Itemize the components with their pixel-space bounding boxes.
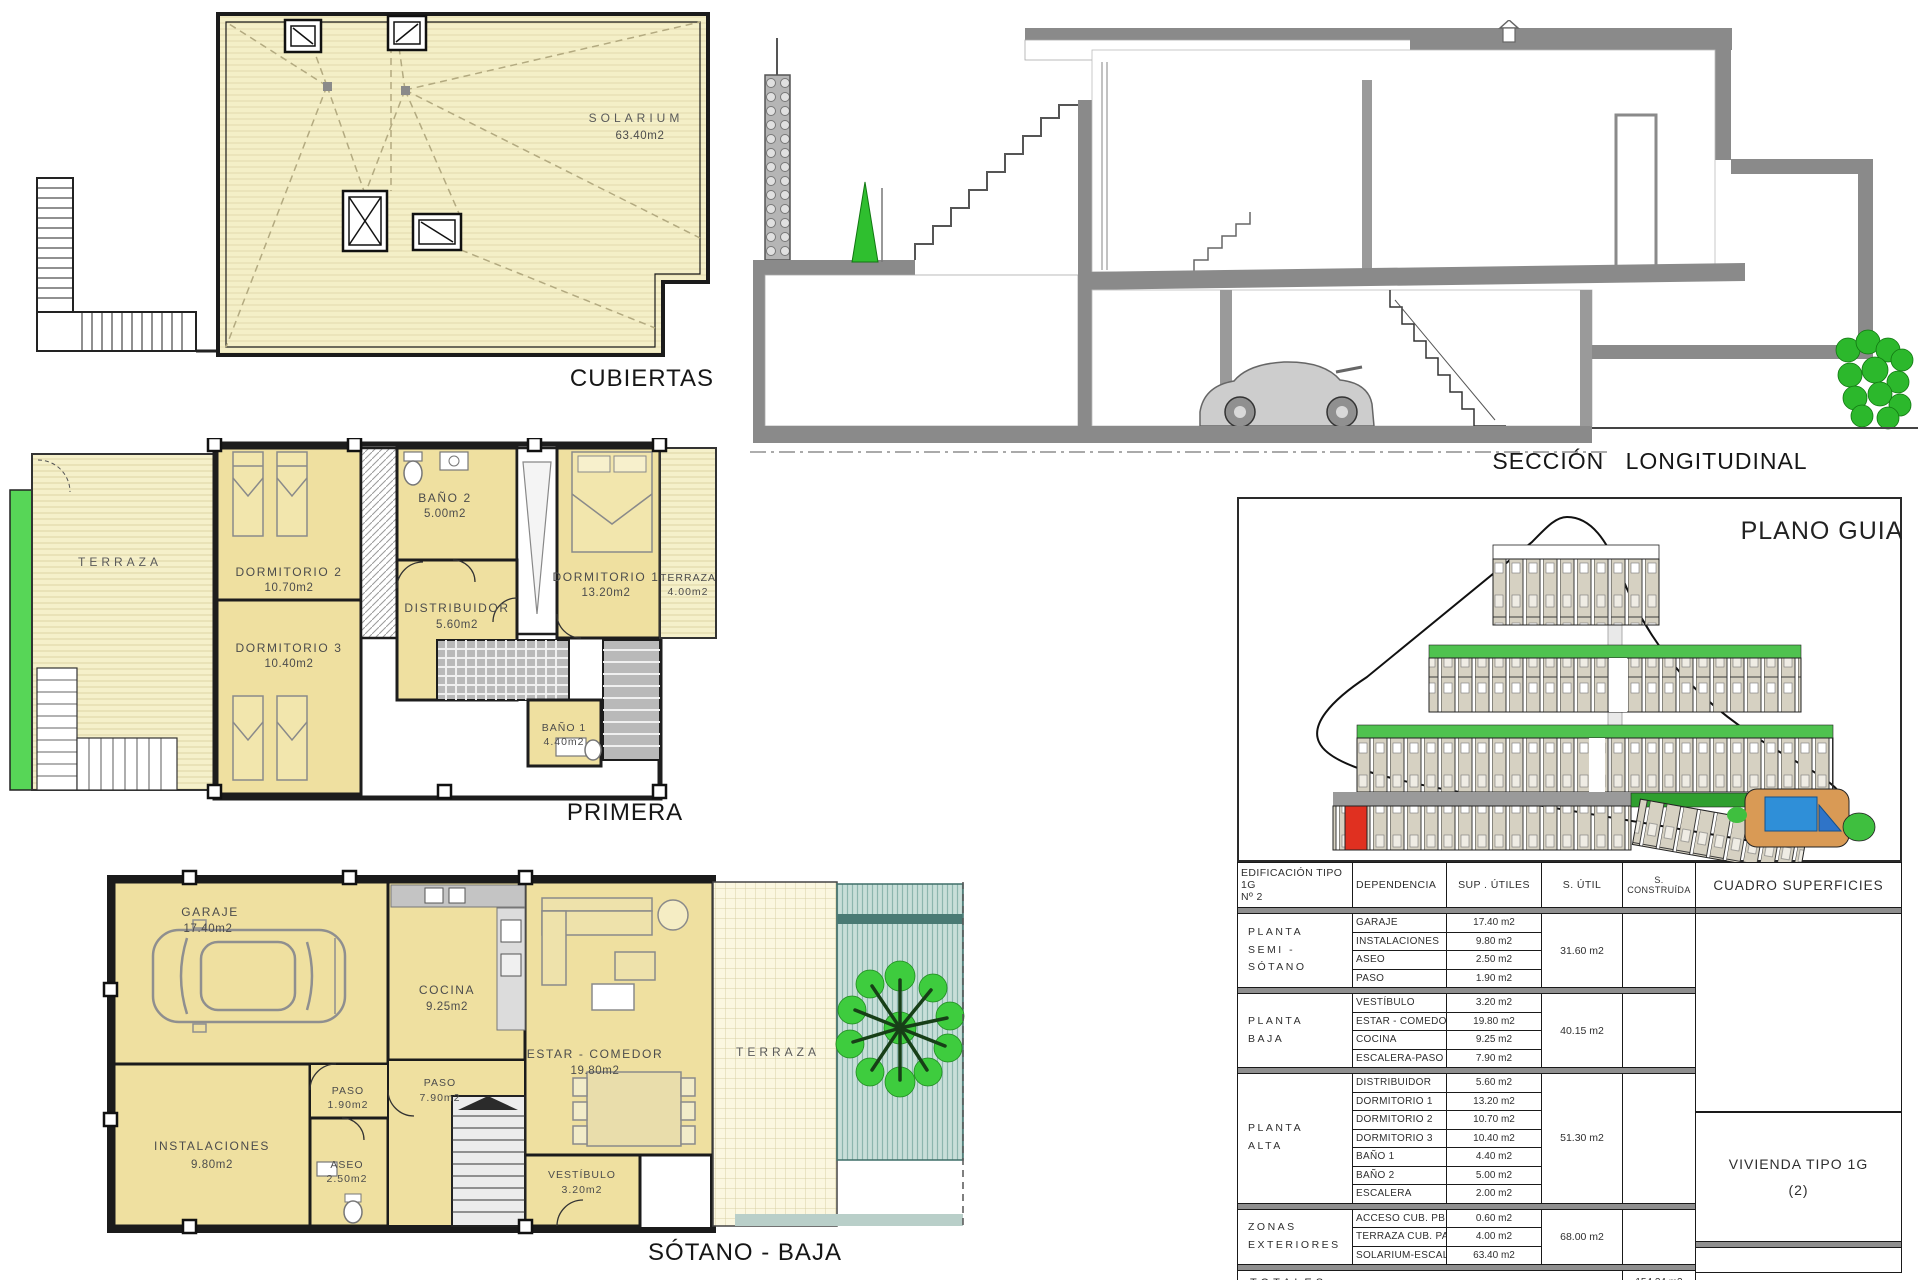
sup-cell: 2.00 m2 bbox=[1447, 1185, 1542, 1204]
basement-wall bbox=[1580, 290, 1592, 426]
subtotal-alta: 51.30 m2 bbox=[1542, 1074, 1623, 1204]
sup-cell: 1.90 m2 bbox=[1447, 969, 1542, 988]
room-label-bano1: BAÑO 1 bbox=[542, 721, 587, 734]
dep-cell: ESCALERA-PASO bbox=[1353, 1049, 1447, 1068]
green-area bbox=[1843, 813, 1875, 841]
room-label-terraza-left: TERRAZA bbox=[78, 555, 162, 569]
dep-cell: DORMITORIO 2 bbox=[1353, 1111, 1447, 1130]
room-label-distribuidor: DISTRIBUIDOR bbox=[404, 601, 509, 615]
garden-lower-strip bbox=[735, 1214, 963, 1226]
housing-row-bottom bbox=[1333, 806, 1631, 850]
table-row: PLANTA SEMI - SÓTANO GARAJE 17.40 m2 31.… bbox=[1238, 914, 1696, 933]
dep-cell: BAÑO 2 bbox=[1353, 1166, 1447, 1185]
room-label-instalaciones: INSTALACIONES bbox=[154, 1139, 270, 1153]
room-label-paso-big: PASO bbox=[424, 1077, 456, 1089]
room-area-bano1: 4.40m2 bbox=[543, 736, 584, 748]
floor-group-exteriores: ZONAS EXTERIORES bbox=[1238, 1209, 1353, 1265]
sup-cell: 5.00 m2 bbox=[1447, 1166, 1542, 1185]
room-label-terraza: TERRAZA bbox=[736, 1045, 820, 1059]
subtotal-semisotano: 31.60 m2 bbox=[1542, 914, 1623, 988]
construida-empty bbox=[1623, 914, 1696, 988]
sup-cell: 5.60 m2 bbox=[1447, 1074, 1542, 1093]
sup-cell: 19.80 m2 bbox=[1447, 1012, 1542, 1031]
roof-vent bbox=[1500, 20, 1518, 42]
header-s-construida: S. CONSTRUÍDA bbox=[1623, 863, 1696, 908]
chimney-icon bbox=[343, 191, 387, 251]
room-garaje bbox=[114, 882, 388, 1064]
construida-empty bbox=[1623, 1209, 1696, 1265]
sup-cell: 9.25 m2 bbox=[1447, 1031, 1542, 1050]
surface-table: EDIFICACIÓN TIPO 1G Nº 2 DEPENDENCIA SUP… bbox=[1237, 862, 1695, 1278]
highlighted-unit bbox=[1345, 806, 1367, 850]
cypress-tree-icon bbox=[852, 182, 882, 262]
wardrobe-strip bbox=[361, 448, 397, 638]
construida-empty bbox=[1623, 1074, 1696, 1204]
dep-cell: INSTALACIONES bbox=[1353, 932, 1447, 951]
totals-label: TOTALES bbox=[1238, 1271, 1623, 1280]
vivienda-tipo-count: (2) bbox=[1788, 1182, 1808, 1198]
left-wall bbox=[753, 275, 765, 440]
dep-cell: BAÑO 1 bbox=[1353, 1148, 1447, 1167]
floor-group-alta: PLANTA ALTA bbox=[1238, 1074, 1353, 1204]
first-floor-plan: TERRAZA DORMITORIO 2 10.70m2 DORMITORIO … bbox=[8, 438, 748, 838]
room-label-estar: ESTAR - COMEDOR bbox=[527, 1047, 663, 1061]
toilet-icon bbox=[404, 452, 422, 485]
interior-wall bbox=[1362, 80, 1372, 272]
site-plan-plano-guia: PLANO GUIA bbox=[1237, 497, 1902, 862]
room-area-dormitorio1: 13.20m2 bbox=[582, 587, 631, 599]
drawing-title-seccion: SECCIÓN LONGITUDINAL bbox=[1492, 448, 1807, 474]
room-area-estar: 19.80m2 bbox=[571, 1065, 620, 1077]
sup-cell: 13.20 m2 bbox=[1447, 1092, 1542, 1111]
dep-cell: ASEO bbox=[1353, 951, 1447, 970]
dep-cell: COCINA bbox=[1353, 1031, 1447, 1050]
drawing-title-primera: PRIMERA bbox=[567, 799, 683, 826]
dep-cell: SOLARIUM-ESCAL. bbox=[1353, 1246, 1447, 1265]
dep-cell: DORMITORIO 3 bbox=[1353, 1129, 1447, 1148]
green-planter-strip bbox=[10, 490, 32, 790]
stairs-ground-floor bbox=[452, 1096, 525, 1226]
stone-wall bbox=[765, 75, 790, 260]
room-label-dormitorio1: DORMITORIO 1 bbox=[553, 570, 660, 584]
room-area-vestibulo: 3.20m2 bbox=[561, 1184, 602, 1196]
dining-table-icon bbox=[573, 1072, 695, 1146]
sup-cell: 17.40 m2 bbox=[1447, 914, 1542, 933]
sup-cell: 0.60 m2 bbox=[1447, 1209, 1542, 1228]
surface-table-grid: EDIFICACIÓN TIPO 1G Nº 2 DEPENDENCIA SUP… bbox=[1237, 862, 1696, 1280]
ground-floor-plan: GARAJE 17.40m2 COCINA 9.25m2 ESTAR - COM… bbox=[95, 868, 995, 1268]
architectural-sheet: SOLARIUM 63.40m2 CUBIERTAS bbox=[0, 0, 1920, 1280]
green-area bbox=[1727, 807, 1747, 823]
drawing-title-sotano: SÓTANO - BAJA bbox=[648, 1239, 842, 1266]
sup-cell: 7.90 m2 bbox=[1447, 1049, 1542, 1068]
dep-cell: GARAJE bbox=[1353, 914, 1447, 933]
right-wing-slab bbox=[1731, 159, 1873, 174]
roof-outline bbox=[218, 14, 708, 355]
drawing-title-plano-guia: PLANO GUIA bbox=[1741, 517, 1902, 545]
table-row: PLANTA BAJA VESTÍBULO 3.20 m2 40.15 m2 bbox=[1238, 994, 1696, 1013]
right-ground-slab bbox=[1592, 345, 1873, 359]
header-dependencia: DEPENDENCIA bbox=[1353, 863, 1447, 908]
subtotal-exteriores: 68.00 m2 bbox=[1542, 1209, 1623, 1265]
room-label-cocina: COCINA bbox=[419, 983, 475, 997]
housing-row-2 bbox=[1429, 645, 1801, 712]
room-area-bano2: 5.00m2 bbox=[424, 508, 466, 520]
room-area-terraza-right: 4.00m2 bbox=[667, 586, 708, 598]
main-left-wall bbox=[1078, 100, 1092, 430]
room-area-dormitorio2: 10.70m2 bbox=[265, 582, 314, 594]
sup-cell: 10.40 m2 bbox=[1447, 1129, 1542, 1148]
total-construida-value: 154.24 m2 bbox=[1623, 1271, 1696, 1280]
roof-slab bbox=[1410, 28, 1732, 50]
skylight-icon bbox=[285, 20, 321, 52]
sup-cell: 63.40 m2 bbox=[1447, 1246, 1542, 1265]
sup-cell: 2.50 m2 bbox=[1447, 951, 1542, 970]
room-area-instalaciones: 9.80m2 bbox=[191, 1159, 233, 1171]
sup-cell: 4.00 m2 bbox=[1447, 1228, 1542, 1247]
parapet-band bbox=[1025, 28, 1417, 40]
vivienda-tipo-cell: VIVIENDA TIPO 1G (2) bbox=[1695, 1112, 1902, 1242]
sup-cell: 4.40 m2 bbox=[1447, 1148, 1542, 1167]
room-area-solarium: 63.40m2 bbox=[616, 130, 665, 142]
room-label-terraza-right: TERRAZA bbox=[660, 572, 716, 584]
room-label-vestibulo: VESTÍBULO bbox=[548, 1168, 616, 1181]
double-bed-icon bbox=[572, 452, 652, 552]
garden-band bbox=[837, 914, 963, 924]
dep-cell: TERRAZA CUB. PA bbox=[1353, 1228, 1447, 1247]
header-s-util: S. ÚTIL bbox=[1542, 863, 1623, 908]
floor-group-baja: PLANTA BAJA bbox=[1238, 994, 1353, 1068]
room-label-solarium: SOLARIUM bbox=[589, 111, 684, 125]
ground-slab bbox=[753, 426, 1592, 443]
room-label-garaje: GARAJE bbox=[181, 905, 239, 919]
roof-plan-cubiertas: SOLARIUM 63.40m2 CUBIERTAS bbox=[20, 8, 780, 398]
dep-cell: PASO bbox=[1353, 969, 1447, 988]
dep-cell: DISTRIBUIDOR bbox=[1353, 1074, 1447, 1093]
pool-area bbox=[1745, 789, 1849, 847]
sink-icon bbox=[440, 452, 468, 470]
table-row: PLANTA ALTA DISTRIBUIDOR 5.60 m2 51.30 m… bbox=[1238, 1074, 1696, 1093]
table-header-row: EDIFICACIÓN TIPO 1G Nº 2 DEPENDENCIA SUP… bbox=[1238, 863, 1696, 908]
room-area-garaje: 17.40m2 bbox=[184, 923, 233, 935]
room-label-aseo: ASEO bbox=[330, 1159, 363, 1171]
sup-cell: 3.20 m2 bbox=[1447, 994, 1542, 1013]
housing-row-3 bbox=[1357, 725, 1833, 792]
ridge-node bbox=[323, 82, 332, 91]
sup-cell: 10.70 m2 bbox=[1447, 1111, 1542, 1130]
section-longitudinal: SECCIÓN LONGITUDINAL bbox=[750, 20, 1920, 475]
header-edificacion: EDIFICACIÓN TIPO 1G Nº 2 bbox=[1238, 863, 1353, 908]
roof-stair bbox=[37, 178, 218, 351]
ridge-node bbox=[401, 86, 410, 95]
drawing-title-cubiertas: CUBIERTAS bbox=[570, 365, 714, 392]
surface-table-right-column: CUADRO SUPERFICIES VIVIENDA TIPO 1G (2) bbox=[1695, 862, 1902, 1278]
housing-row-1 bbox=[1493, 545, 1659, 625]
header-sup-utiles: SUP . ÚTILES bbox=[1447, 863, 1542, 908]
table-row: ZONAS EXTERIORES ACCESO CUB. PB 0.60 m2 … bbox=[1238, 1209, 1696, 1228]
room-area-cocina: 9.25m2 bbox=[426, 1001, 468, 1013]
cuadro-superficies-header: CUADRO SUPERFICIES bbox=[1695, 862, 1902, 908]
shower-closet bbox=[517, 448, 557, 634]
room-label-paso-small: PASO bbox=[332, 1085, 364, 1097]
room-label-bano2: BAÑO 2 bbox=[418, 491, 472, 505]
room-area-dormitorio3: 10.40m2 bbox=[265, 658, 314, 670]
room-terraza-right bbox=[660, 448, 716, 638]
dep-cell: ESTAR - COMEDOR bbox=[1353, 1012, 1447, 1031]
floor-group-semisotano: PLANTA SEMI - SÓTANO bbox=[1238, 914, 1353, 988]
vivienda-tipo-label: VIVIENDA TIPO 1G bbox=[1729, 1156, 1868, 1172]
exterior-stair-profile bbox=[915, 105, 1080, 260]
cuadro-bottom-cell bbox=[1695, 1247, 1902, 1273]
hedge-icon bbox=[1836, 330, 1913, 429]
room-area-aseo: 2.50m2 bbox=[326, 1173, 367, 1185]
dep-cell: ACCESO CUB. PB bbox=[1353, 1209, 1447, 1228]
room-area-distribuidor: 5.60m2 bbox=[436, 619, 478, 631]
skylight-icon bbox=[388, 16, 426, 50]
door-frame bbox=[1616, 115, 1656, 272]
basement-left-room bbox=[765, 275, 1078, 426]
dep-cell: ESCALERA bbox=[1353, 1185, 1447, 1204]
terrace-slab bbox=[753, 260, 915, 275]
room-label-dormitorio2: DORMITORIO 2 bbox=[236, 565, 343, 579]
cuadro-empty-cell bbox=[1695, 913, 1902, 1112]
room-area-paso-big: 7.90m2 bbox=[419, 1092, 460, 1104]
subtotal-baja: 40.15 m2 bbox=[1542, 994, 1623, 1068]
sup-cell: 9.80 m2 bbox=[1447, 932, 1542, 951]
room-area-paso-small: 1.90m2 bbox=[327, 1099, 368, 1111]
totals-row: TOTALES 154.24 m2 bbox=[1238, 1271, 1696, 1280]
skylight-icon bbox=[413, 214, 461, 250]
construida-empty bbox=[1623, 994, 1696, 1068]
right-wing-wall bbox=[1858, 174, 1873, 345]
room-label-dormitorio3: DORMITORIO 3 bbox=[236, 641, 343, 655]
main-right-wall bbox=[1715, 28, 1731, 160]
dep-cell: DORMITORIO 1 bbox=[1353, 1092, 1447, 1111]
dep-cell: VESTÍBULO bbox=[1353, 994, 1447, 1013]
